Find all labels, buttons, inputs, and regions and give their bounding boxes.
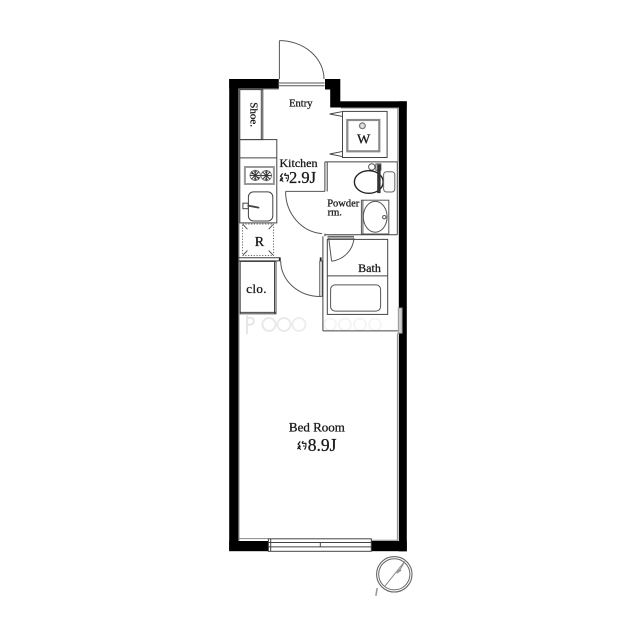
svg-text:rm.: rm. xyxy=(328,207,342,218)
svg-text:2.9J: 2.9J xyxy=(289,168,317,187)
svg-text:Entry: Entry xyxy=(289,98,313,109)
svg-text:8.9J: 8.9J xyxy=(308,435,337,455)
svg-text:clo.: clo. xyxy=(246,281,267,296)
svg-text:Shoe.: Shoe. xyxy=(247,102,259,127)
svg-text:Bath: Bath xyxy=(358,261,381,275)
svg-text:Bed Room: Bed Room xyxy=(289,420,345,435)
svg-text:W: W xyxy=(357,133,371,148)
svg-text:R: R xyxy=(255,235,265,250)
